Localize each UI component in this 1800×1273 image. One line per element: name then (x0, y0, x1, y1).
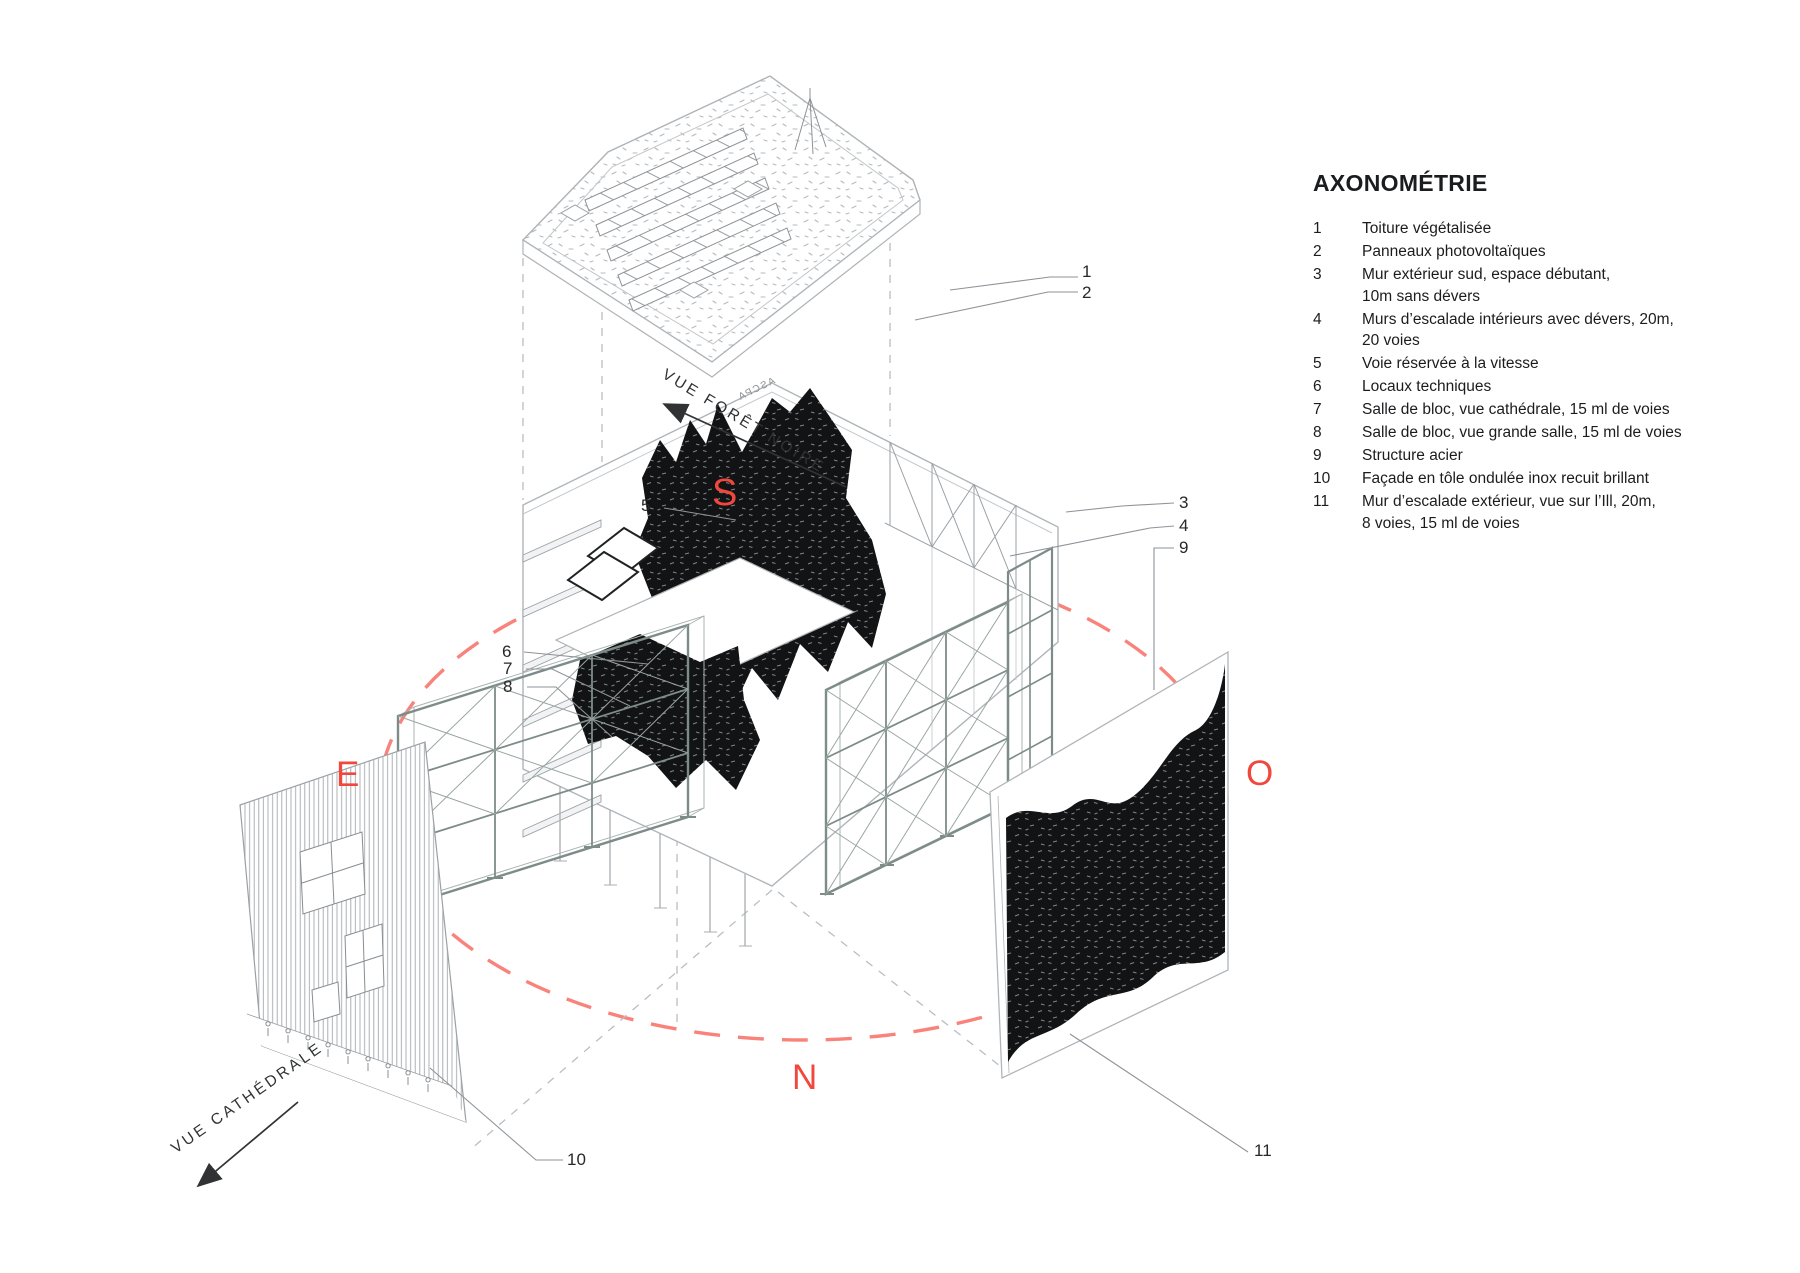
legend-item-3: 3 Mur extérieur sud, espace débutant, 10… (1313, 264, 1788, 307)
legend-item-number: 1 (1313, 218, 1362, 240)
legend-title: AXONOMÉTRIE (1313, 170, 1788, 197)
callout-8: 8 (503, 678, 512, 695)
callout-11: 11 (1254, 1142, 1272, 1159)
legend-item-number: 5 (1313, 353, 1362, 375)
legend-item-number: 6 (1313, 376, 1362, 398)
legend-item-9: 9 Structure acier (1313, 445, 1788, 467)
legend-item-6: 6 Locaux techniques (1313, 376, 1788, 398)
axonometric-diagram-page: S E O N VUE FORÊT NOIRE VUE CATHÉDRALE A… (0, 0, 1800, 1273)
callout-2: 2 (1082, 284, 1091, 301)
building-piece (523, 383, 1058, 946)
exterior-climbing-wall-piece (990, 652, 1228, 1078)
callout-4: 4 (1179, 517, 1188, 534)
legend-item-number: 8 (1313, 422, 1362, 444)
legend-item-number: 10 (1313, 468, 1362, 490)
compass-north-label: N (792, 1060, 817, 1095)
legend: AXONOMÉTRIE 1 Toiture végétalisée 2 Pann… (1313, 170, 1788, 536)
compass-south-label: S (712, 474, 737, 512)
legend-item-text: Mur d’escalade extérieur, vue sur l’Ill,… (1362, 491, 1656, 534)
legend-item-8: 8 Salle de bloc, vue grande salle, 15 ml… (1313, 422, 1788, 444)
legend-item-text: Salle de bloc, vue cathédrale, 15 ml de … (1362, 399, 1670, 421)
legend-item-text: Toiture végétalisée (1362, 218, 1491, 240)
legend-item-7: 7 Salle de bloc, vue cathédrale, 15 ml d… (1313, 399, 1788, 421)
roof-piece (523, 76, 920, 377)
callout-7: 7 (503, 660, 512, 677)
legend-item-text: Panneaux photovoltaïques (1362, 241, 1546, 263)
callout-1: 1 (1082, 263, 1091, 280)
legend-item-number: 7 (1313, 399, 1362, 421)
legend-item-number: 3 (1313, 264, 1362, 307)
facade-panel-piece (240, 742, 466, 1122)
callout-10: 10 (567, 1151, 586, 1168)
callout-9: 9 (1179, 539, 1188, 556)
compass-east-label: E (336, 757, 359, 792)
legend-item-11: 11 Mur d’escalade extérieur, vue sur l’I… (1313, 491, 1788, 534)
callout-5: 5 (641, 497, 650, 514)
legend-item-2: 2 Panneaux photovoltaïques (1313, 241, 1788, 263)
legend-item-text: Mur extérieur sud, espace débutant, 10m … (1362, 264, 1610, 307)
legend-item-5: 5 Voie réservée à la vitesse (1313, 353, 1788, 375)
legend-item-text: Murs d’escalade intérieurs avec dévers, … (1362, 309, 1674, 352)
legend-item-text: Locaux techniques (1362, 376, 1491, 398)
legend-item-number: 11 (1313, 491, 1362, 534)
legend-item-text: Structure acier (1362, 445, 1463, 467)
legend-item-1: 1 Toiture végétalisée (1313, 218, 1788, 240)
legend-item-4: 4 Murs d’escalade intérieurs avec dévers… (1313, 309, 1788, 352)
legend-item-number: 2 (1313, 241, 1362, 263)
legend-item-10: 10 Façade en tôle ondulée inox recuit br… (1313, 468, 1788, 490)
legend-item-text: Salle de bloc, vue grande salle, 15 ml d… (1362, 422, 1682, 444)
legend-item-text: Façade en tôle ondulée inox recuit brill… (1362, 468, 1649, 490)
legend-item-number: 4 (1313, 309, 1362, 352)
compass-west-label: O (1246, 756, 1273, 791)
callout-3: 3 (1179, 494, 1188, 511)
legend-item-text: Voie réservée à la vitesse (1362, 353, 1539, 375)
callout-6: 6 (502, 643, 511, 660)
legend-item-number: 9 (1313, 445, 1362, 467)
